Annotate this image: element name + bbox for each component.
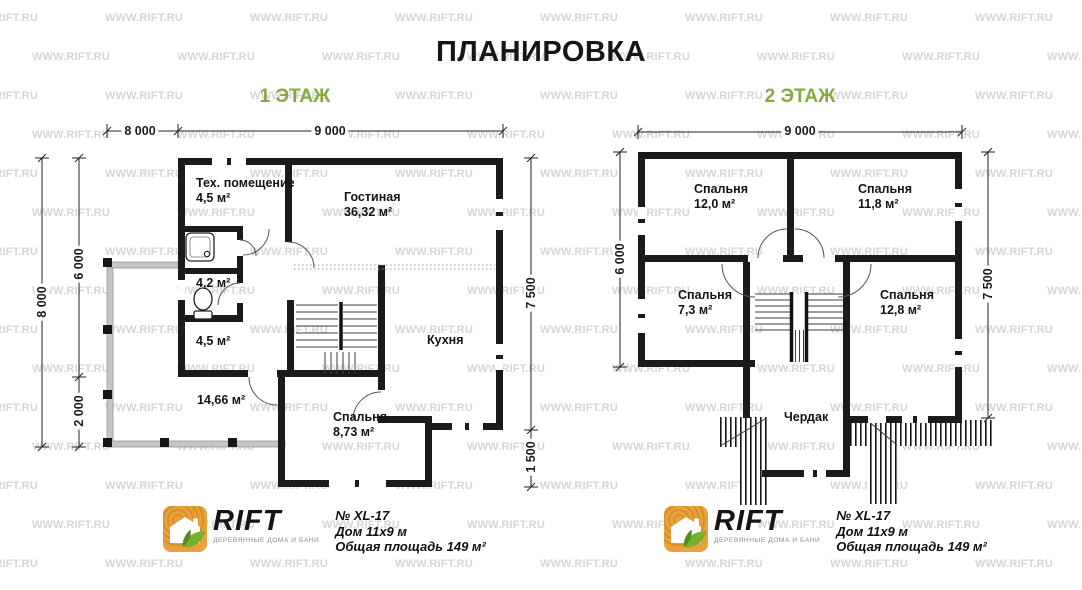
- logo-brand: RIFT: [213, 506, 319, 536]
- rift-logo-icon: [163, 506, 207, 552]
- floor1-terrace: [103, 258, 285, 447]
- project-specs: № XL-17 Дом 11х9 м Общая площадь 149 м²: [335, 508, 486, 555]
- logo-tagline: ДЕРЕВЯННЫЕ ДОМА И БАНИ: [213, 537, 319, 544]
- spec-model: № XL-17: [836, 508, 987, 524]
- floor2-dimension-lines: [613, 125, 995, 422]
- logo-brand: RIFT: [714, 506, 820, 536]
- floorplan-graphics: [0, 0, 1082, 590]
- floor1-plan: [35, 124, 538, 491]
- floor1-stairs: [296, 302, 377, 374]
- floor1-dotted-divider: [294, 265, 495, 269]
- project-specs: № XL-17 Дом 11х9 м Общая площадь 149 м²: [836, 508, 987, 555]
- floor1-interior-walls: [178, 158, 432, 423]
- logo-block-floor1: RIFT ДЕРЕВЯННЫЕ ДОМА И БАНИ № XL-17 Дом …: [163, 506, 486, 555]
- floor2-stairs: [755, 292, 843, 362]
- toilet-icon: [194, 288, 212, 319]
- spec-house-size: Дом 11х9 м: [335, 524, 486, 540]
- spec-total-area: Общая площадь 149 м²: [836, 539, 987, 555]
- spec-model: № XL-17: [335, 508, 486, 524]
- attic-hatching: [718, 417, 993, 505]
- spec-house-size: Дом 11х9 м: [836, 524, 987, 540]
- rift-logo-icon: [664, 506, 708, 552]
- floor2-plan: [613, 125, 995, 505]
- logo-tagline: ДЕРЕВЯННЫЕ ДОМА И БАНИ: [714, 537, 820, 544]
- shower-icon: [186, 233, 214, 261]
- logo-block-floor2: RIFT ДЕРЕВЯННЫЕ ДОМА И БАНИ № XL-17 Дом …: [664, 506, 987, 555]
- page: WWW.RIFT.RUWWW.RIFT.RUWWW.RIFT.RUWWW.RIF…: [0, 0, 1082, 590]
- spec-total-area: Общая площадь 149 м²: [335, 539, 486, 555]
